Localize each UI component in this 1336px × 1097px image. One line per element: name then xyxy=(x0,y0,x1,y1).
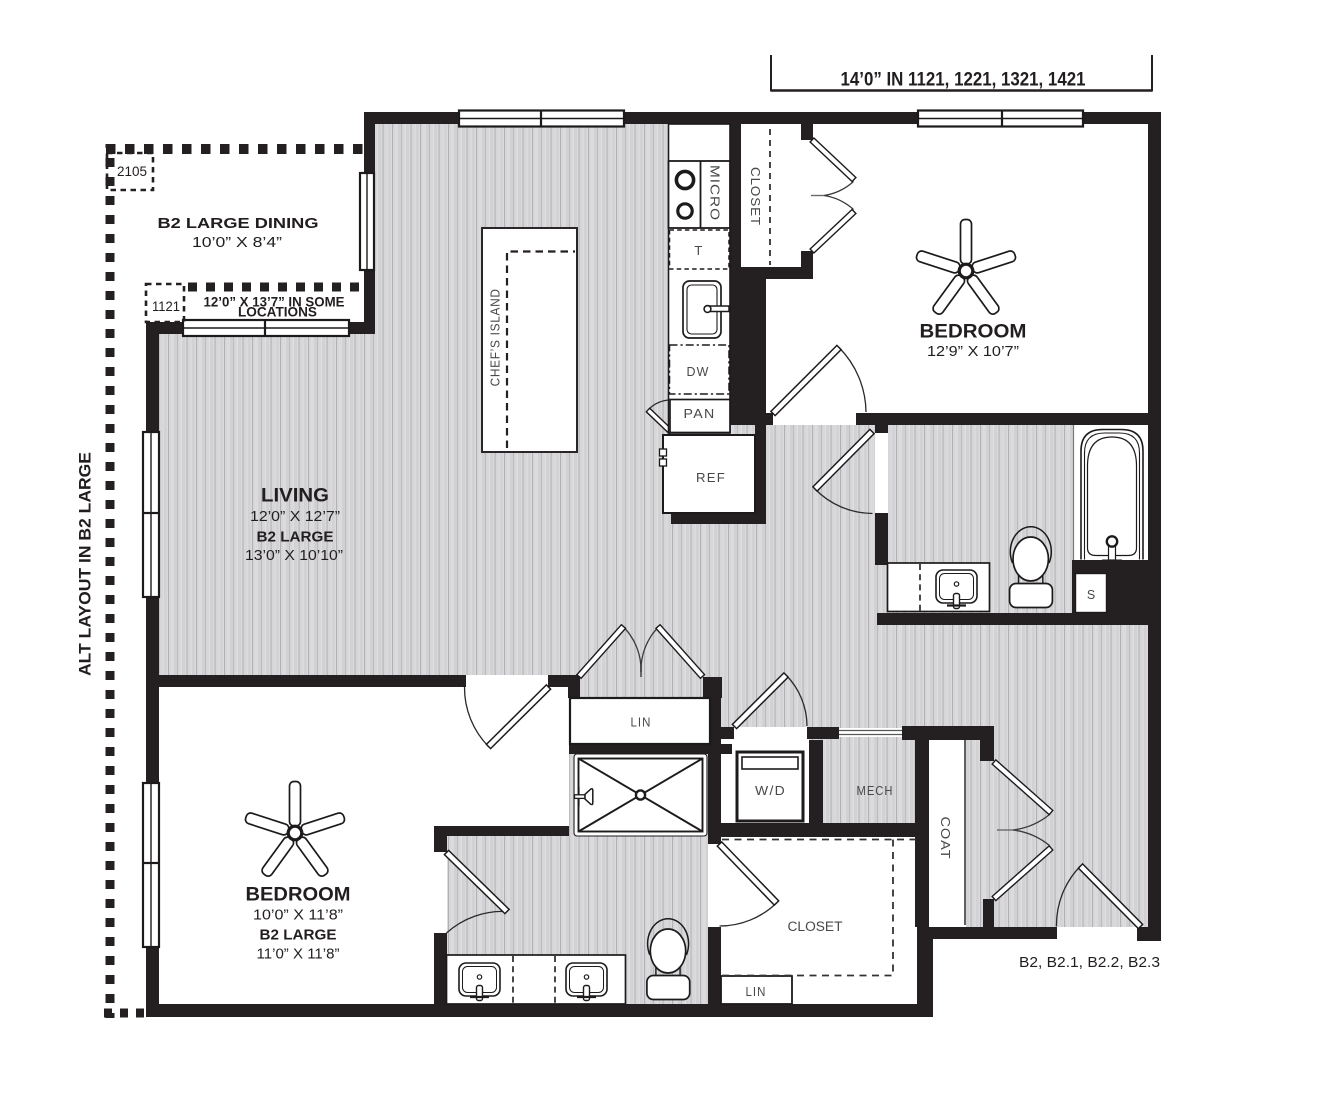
svg-text:S: S xyxy=(1087,588,1096,602)
svg-text:COAT: COAT xyxy=(938,817,952,860)
svg-text:10’0” X 11’8”: 10’0” X 11’8” xyxy=(253,907,343,924)
svg-text:T: T xyxy=(694,243,703,258)
svg-text:BEDROOM: BEDROOM xyxy=(246,884,351,906)
svg-text:12’0” X 12’7”: 12’0” X 12’7” xyxy=(250,508,340,525)
svg-text:2105: 2105 xyxy=(117,163,147,179)
svg-text:W/D: W/D xyxy=(755,783,786,798)
svg-text:CHEF’S ISLAND: CHEF’S ISLAND xyxy=(488,288,503,386)
svg-text:CLOSET: CLOSET xyxy=(748,167,762,226)
svg-text:PAN: PAN xyxy=(684,406,716,421)
svg-text:12’9” X 10’7”: 12’9” X 10’7” xyxy=(927,343,1019,360)
svg-text:B2, B2.1, B2.2, B2.3: B2, B2.1, B2.2, B2.3 xyxy=(1019,954,1160,971)
svg-text:11’0” X 11’8”: 11’0” X 11’8” xyxy=(257,946,340,963)
svg-text:LIN: LIN xyxy=(631,715,652,730)
svg-text:LIVING: LIVING xyxy=(261,485,329,507)
svg-text:REF: REF xyxy=(696,470,726,485)
svg-text:LIN: LIN xyxy=(746,984,767,999)
svg-text:B2 LARGE DINING: B2 LARGE DINING xyxy=(158,216,319,232)
svg-text:MECH: MECH xyxy=(857,783,894,798)
svg-text:B2 LARGE: B2 LARGE xyxy=(260,928,337,944)
svg-text:14’0” IN 1121, 1221, 1321, 142: 14’0” IN 1121, 1221, 1321, 1421 xyxy=(841,69,1086,91)
svg-text:13’0” X 10’10”: 13’0” X 10’10” xyxy=(245,547,343,564)
svg-text:DW: DW xyxy=(687,364,710,379)
svg-text:LOCATIONS: LOCATIONS xyxy=(238,305,317,320)
svg-text:CLOSET: CLOSET xyxy=(788,919,843,934)
svg-text:BEDROOM: BEDROOM xyxy=(920,321,1027,343)
svg-text:MICRO: MICRO xyxy=(708,165,722,221)
svg-text:1121: 1121 xyxy=(152,298,180,314)
svg-text:10’0” X 8’4”: 10’0” X 8’4” xyxy=(192,234,282,251)
svg-text:B2 LARGE: B2 LARGE xyxy=(257,530,334,546)
svg-text:ALT LAYOUT IN B2 LARGE: ALT LAYOUT IN B2 LARGE xyxy=(77,452,95,676)
